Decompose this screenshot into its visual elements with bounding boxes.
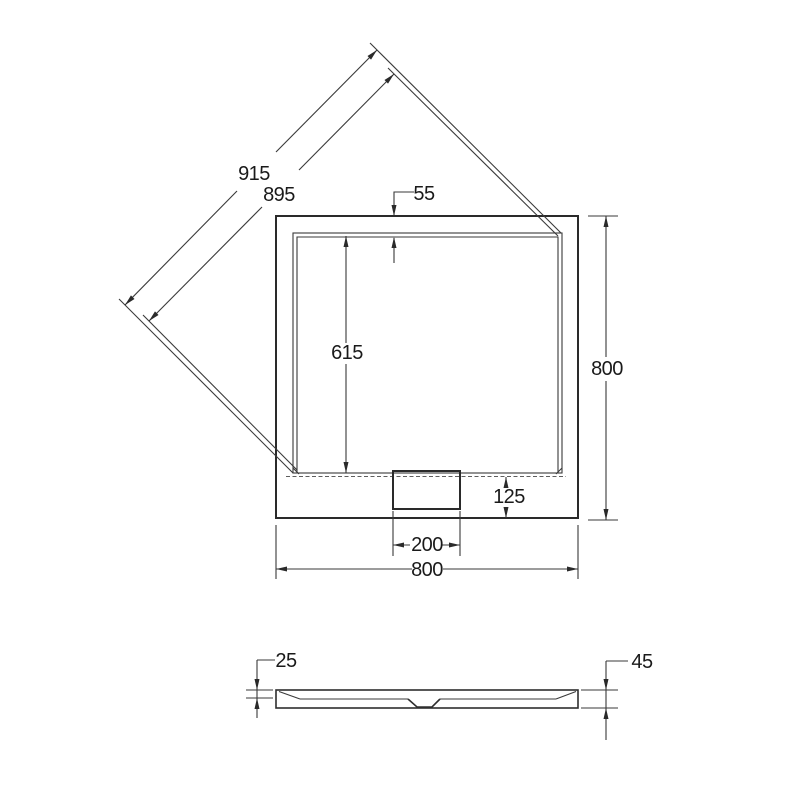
leader-line <box>394 192 414 215</box>
dimension-line-915 <box>276 50 377 152</box>
drain-recess-profile <box>408 699 440 707</box>
dim-label-800-right: 800 <box>591 358 623 380</box>
extension-line <box>143 315 297 470</box>
dimension-55: 55 <box>392 183 435 263</box>
basin-slope-left <box>279 692 300 700</box>
technical-drawing-page: 915 895 55 615 800 125 <box>0 0 800 800</box>
dim-label-895: 895 <box>263 184 295 206</box>
dimension-line-895 <box>299 74 394 170</box>
dim-label-915: 915 <box>238 163 270 185</box>
arrowhead <box>255 698 260 709</box>
dimension-800-right: 800 <box>588 216 623 520</box>
arrowhead <box>393 543 404 548</box>
dim-label-800-bottom: 800 <box>411 559 443 581</box>
extension-line <box>388 68 558 236</box>
dimension-line-915 <box>125 191 237 305</box>
diagonal-dimensions: 915 895 <box>119 43 561 473</box>
dimension-615: 615 <box>331 236 363 473</box>
basin-slope-right <box>556 692 576 700</box>
dimension-125: 125 <box>493 477 525 518</box>
arrowhead <box>567 567 578 572</box>
arrowhead <box>504 507 509 518</box>
dim-label-125: 125 <box>493 486 525 508</box>
dim-label-615: 615 <box>331 342 363 364</box>
plan-view <box>276 216 578 518</box>
arrowhead <box>604 708 609 719</box>
arrowhead <box>449 543 460 548</box>
side-view <box>276 690 578 708</box>
extension-line <box>370 43 561 233</box>
arrowhead <box>344 236 349 247</box>
shower-tray-dimension-drawing: 915 895 55 615 800 125 <box>0 0 800 800</box>
dim-label-25: 25 <box>275 650 297 672</box>
arrowhead <box>604 509 609 520</box>
dim-label-45: 45 <box>631 651 653 673</box>
arrowhead <box>604 216 609 227</box>
arrowhead <box>276 567 287 572</box>
dimension-45: 45 <box>581 651 653 740</box>
arrowhead <box>604 679 609 690</box>
arrowhead <box>344 462 349 473</box>
arrowhead <box>392 205 397 216</box>
arrowhead <box>392 237 397 248</box>
dim-label-200: 200 <box>411 534 443 556</box>
arrowhead <box>255 679 260 690</box>
extension-line <box>119 299 293 473</box>
dim-label-55: 55 <box>413 183 435 205</box>
